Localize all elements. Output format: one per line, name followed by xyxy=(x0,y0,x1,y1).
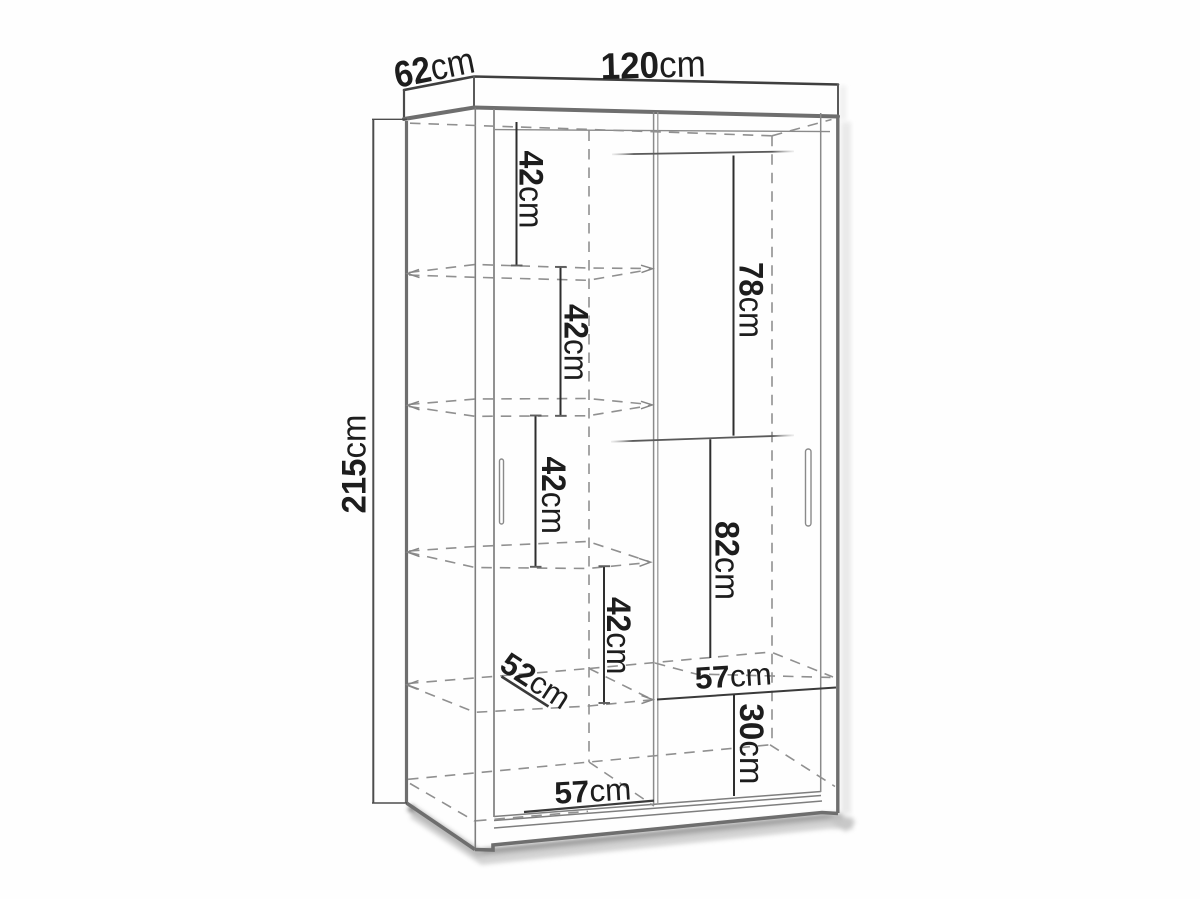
svg-text:52cm: 52cm xyxy=(494,646,577,717)
svg-text:42cm: 42cm xyxy=(512,151,550,229)
svg-text:62cm: 62cm xyxy=(390,40,478,96)
svg-text:215cm: 215cm xyxy=(336,415,374,514)
svg-text:57cm: 57cm xyxy=(553,771,632,810)
svg-text:82cm: 82cm xyxy=(708,521,746,600)
svg-text:78cm: 78cm xyxy=(732,262,770,338)
svg-text:120cm: 120cm xyxy=(600,43,706,87)
svg-text:42cm: 42cm xyxy=(599,597,637,675)
svg-text:42cm: 42cm xyxy=(534,457,572,535)
svg-text:42cm: 42cm xyxy=(557,304,595,381)
svg-text:57cm: 57cm xyxy=(694,656,773,696)
svg-text:30cm: 30cm xyxy=(732,704,770,785)
